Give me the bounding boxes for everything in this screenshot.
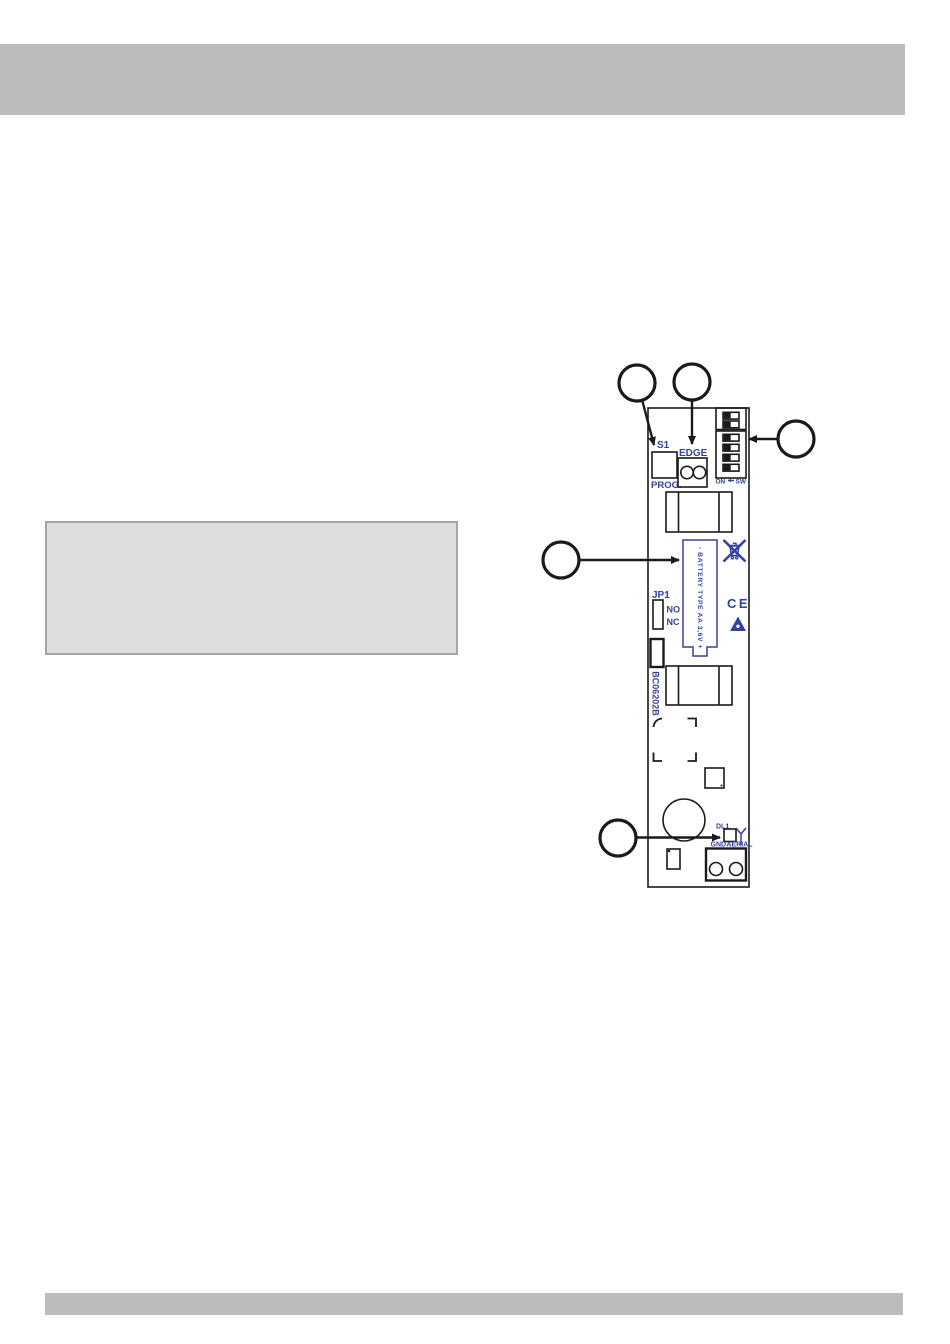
callout-circle-prog [619,365,655,401]
prog-label: PROG. [651,480,682,491]
callout-circle-battery [543,542,579,578]
s1-label: S1 [657,440,670,451]
weee-crossed-bin-icon [724,540,746,562]
relay-lower [666,666,732,705]
callout-circle-edge [674,364,710,400]
dip-switch [716,408,746,478]
ce-mark: CE [727,596,750,611]
dip-sw-label: SW [736,479,747,486]
jp1-jumper [653,600,663,629]
jp1-nc-label: NC [667,617,680,627]
esd-warning-triangle-icon [730,617,746,632]
edge-terminal [678,458,707,487]
pcb-diagram: S1 PROG. EDGE [530,355,830,900]
page-footer-bar [45,1293,903,1315]
fuse-component [651,639,664,667]
relay-upper [666,492,732,532]
buzzer [663,799,705,841]
callout-circle-dl1 [600,820,636,856]
dip-on-label: ON [716,479,726,486]
ic-pin1-dot [721,785,723,787]
board-code-label: BC06202B [651,671,661,716]
dip-switch-rows [723,412,739,471]
dl1-led [724,829,736,842]
small-component [667,849,680,869]
battery: - BATTERY TYPE AA 3,6V + [683,540,717,656]
fiducial-brackets [654,719,697,762]
battery-label: - BATTERY TYPE AA 3,6V + [696,547,703,649]
jp1-no-label: NO [667,605,681,615]
dip-on-arrowhead-icon [728,479,731,483]
prog-button [652,452,677,478]
note-box [45,521,458,655]
callout-circle-dip [778,421,814,457]
manual-page: S1 PROG. EDGE [0,0,950,1344]
gnd-aerial-terminal [706,849,746,881]
page-header-bar [0,44,905,115]
